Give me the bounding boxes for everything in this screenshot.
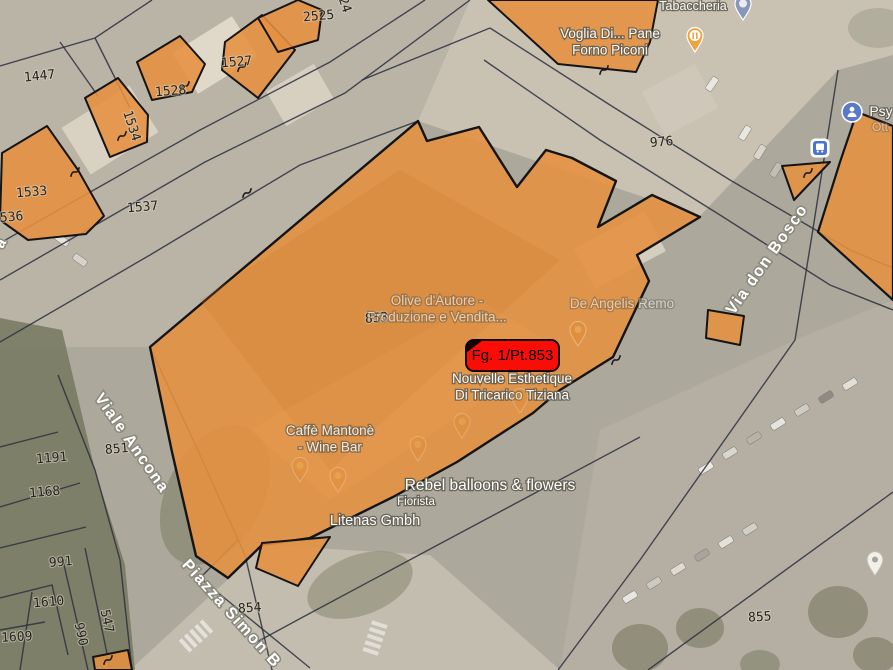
badge-corner-notch [466, 340, 483, 353]
poi-label-line: Nouvelle Esthetique [452, 371, 572, 386]
parcel-number-label: 855 [748, 609, 772, 625]
poi-label-line: - Wine Bar [298, 440, 362, 455]
parcel-number-label: 1533 [15, 184, 48, 202]
pin-dot [297, 462, 304, 469]
bus-wheel [821, 150, 823, 152]
badge-label: Fg. 1/Pt.853 [472, 347, 554, 364]
parcel-number-label: 1537 [126, 199, 159, 217]
poi-label-line: Voglia Di... Pane [560, 26, 660, 41]
bus-glyph [816, 144, 824, 151]
bus-stop-icon[interactable] [811, 139, 830, 158]
map-layers: 1447152715281534252524153353615379768538… [0, 0, 893, 670]
parcel-number-label: 976 [649, 134, 674, 151]
pin-dot [872, 557, 878, 563]
terrain-shape [0, 318, 135, 670]
pin-dot [517, 393, 524, 400]
icon-disc [842, 102, 862, 122]
poi-label: Ott [872, 120, 889, 134]
poi-label-line: Ott [872, 120, 889, 134]
person-poi-icon[interactable] [842, 102, 862, 122]
poi-label: Litenas Gmbh [330, 513, 420, 529]
poi-label-line: Caffè Mantonè [286, 423, 374, 438]
poi-label-line: Fiorista [397, 496, 435, 508]
poi-label-line: Rebel balloons & flowers [405, 477, 576, 494]
parcel-number-label: 1527 [220, 54, 253, 72]
car [769, 162, 783, 178]
poi-label-line: De Angelis Remo [570, 296, 674, 311]
bus-wheel [817, 150, 819, 152]
parcel-highlight-badge[interactable]: Fg. 1/Pt.853 [465, 339, 560, 372]
parcel-number-label: 2525 [302, 8, 335, 26]
pin-dot [575, 326, 582, 333]
poi-label: Psy [869, 103, 892, 119]
parcel-number-label: 1609 [1, 629, 33, 646]
pin-dot [415, 441, 422, 448]
fork-glyph [692, 33, 694, 40]
vegetation [676, 608, 724, 648]
poi-label: Rebel balloons & flowers [405, 477, 576, 494]
parcel-number-label: 1528 [154, 83, 187, 101]
poi-label-line: Litenas Gmbh [330, 513, 420, 529]
vegetation [612, 624, 668, 670]
poi-label-line: Psy [869, 103, 892, 119]
map-canvas[interactable]: 1447152715281534252524153353615379768538… [0, 0, 893, 670]
parcel-number-label: 536 [0, 209, 24, 226]
poi-label: Caffè Mantonè- Wine Bar [286, 423, 374, 455]
cadastral-parcel[interactable] [818, 112, 893, 300]
poi-label-line: Tabaccheria [659, 0, 726, 13]
cadastral-parcel[interactable] [782, 162, 830, 200]
poi-label-line: Forno Piconi [572, 43, 648, 58]
parcel-number-label: 1191 [35, 450, 68, 468]
poi-label: De Angelis Remo [570, 296, 674, 311]
poi-label: Tabaccheria [659, 0, 726, 13]
pin-disc [690, 30, 701, 41]
pin-dot [335, 472, 342, 479]
street-name-label: Viale Ancona [91, 390, 172, 496]
poi-label: Fiorista [397, 496, 435, 508]
pin-dot [459, 418, 466, 425]
parcel-number-label: 1168 [28, 484, 61, 502]
poi-label: Voglia Di... PaneForno Piconi [560, 26, 660, 58]
person-head [850, 107, 855, 112]
parcel-number-label: 991 [48, 554, 73, 571]
poi-label-line: Olive d'Autore - [391, 293, 484, 308]
poi-label-line: Produzione e Vendita... [367, 310, 507, 325]
vegetation [808, 586, 868, 638]
parcel-number-label: 1610 [32, 594, 65, 612]
knife-glyph [696, 33, 698, 40]
street-name-label: Via don Bosco [723, 201, 812, 318]
